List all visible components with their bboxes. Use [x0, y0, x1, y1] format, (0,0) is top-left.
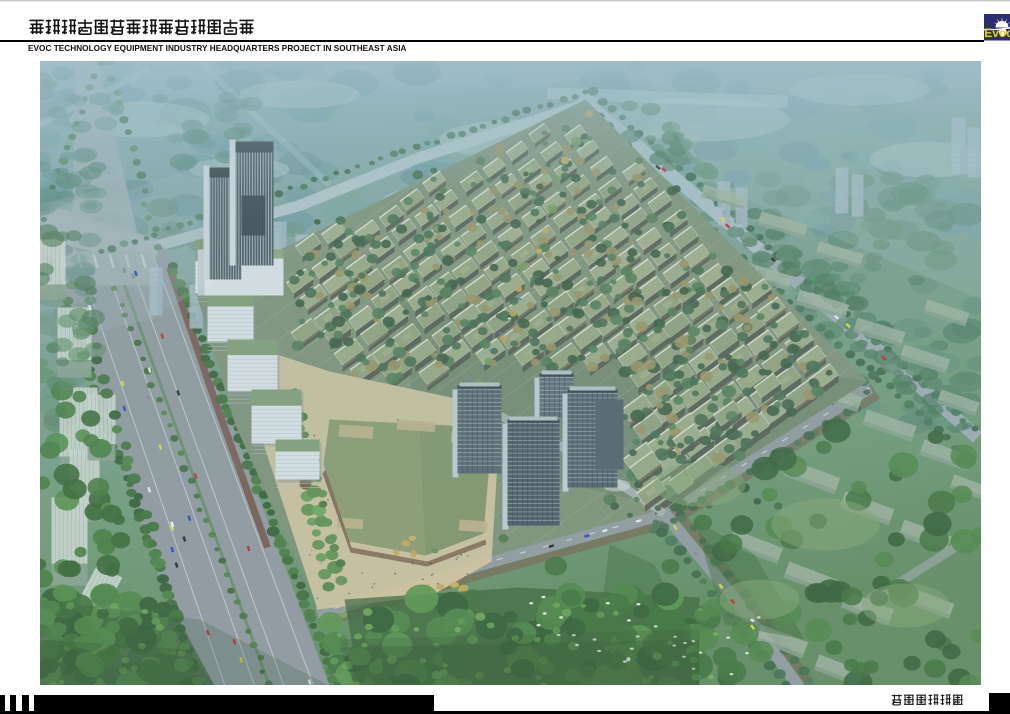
svg-text:Evoc: Evoc — [984, 26, 1010, 40]
